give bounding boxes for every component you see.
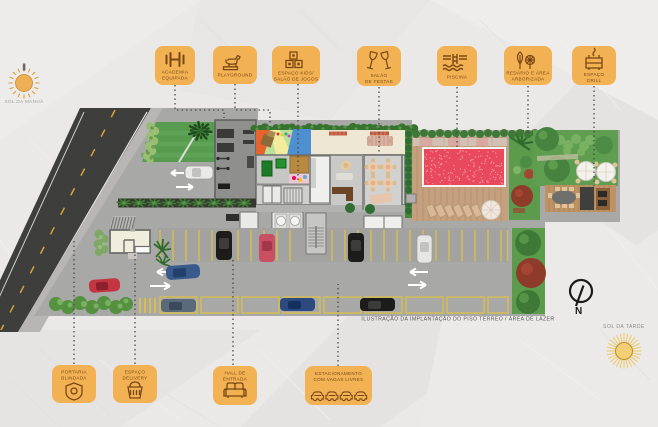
svg-text:PLAYGROUND: PLAYGROUND xyxy=(218,73,253,78)
svg-text:PISCINA: PISCINA xyxy=(447,75,468,80)
svg-text:DE FESTAS: DE FESTAS xyxy=(365,79,393,84)
svg-text:ESPAÇO KIDS/: ESPAÇO KIDS/ xyxy=(278,71,314,76)
svg-text:ESPAÇO: ESPAÇO xyxy=(125,370,146,375)
svg-text:N: N xyxy=(575,306,582,317)
svg-text:PORTARIA: PORTARIA xyxy=(61,370,87,375)
svg-text:EQUIPADA: EQUIPADA xyxy=(162,76,188,81)
svg-text:SOL DA TARDE: SOL DA TARDE xyxy=(603,324,645,330)
svg-text:ESPAÇO: ESPAÇO xyxy=(584,72,605,77)
svg-text:ESTACIONAMENTO: ESTACIONAMENTO xyxy=(315,371,362,376)
svg-text:ILUSTRAÇÃO DA IMPLANTAÇÃO DO P: ILUSTRAÇÃO DA IMPLANTAÇÃO DO PISO TÉRREO… xyxy=(361,316,554,323)
svg-text:REDÁRIO E ÁREA: REDÁRIO E ÁREA xyxy=(506,70,550,76)
svg-text:BLINDADA: BLINDADA xyxy=(61,376,87,381)
svg-text:COM VAGAS LIVRES: COM VAGAS LIVRES xyxy=(314,377,364,382)
svg-text:ACADEMIA: ACADEMIA xyxy=(162,70,189,75)
svg-text:HALL DE: HALL DE xyxy=(224,371,245,376)
svg-text:ARBORIZADA: ARBORIZADA xyxy=(512,77,545,82)
svg-text:GRILL: GRILL xyxy=(587,78,602,83)
svg-text:SALÃO: SALÃO xyxy=(371,72,388,78)
svg-text:ENTRADA: ENTRADA xyxy=(223,377,248,382)
svg-text:DELIVERY: DELIVERY xyxy=(122,376,147,381)
svg-text:SOL DA MANHÃ: SOL DA MANHÃ xyxy=(4,98,44,104)
svg-text:SALÃO DE JOGOS: SALÃO DE JOGOS xyxy=(274,76,319,82)
